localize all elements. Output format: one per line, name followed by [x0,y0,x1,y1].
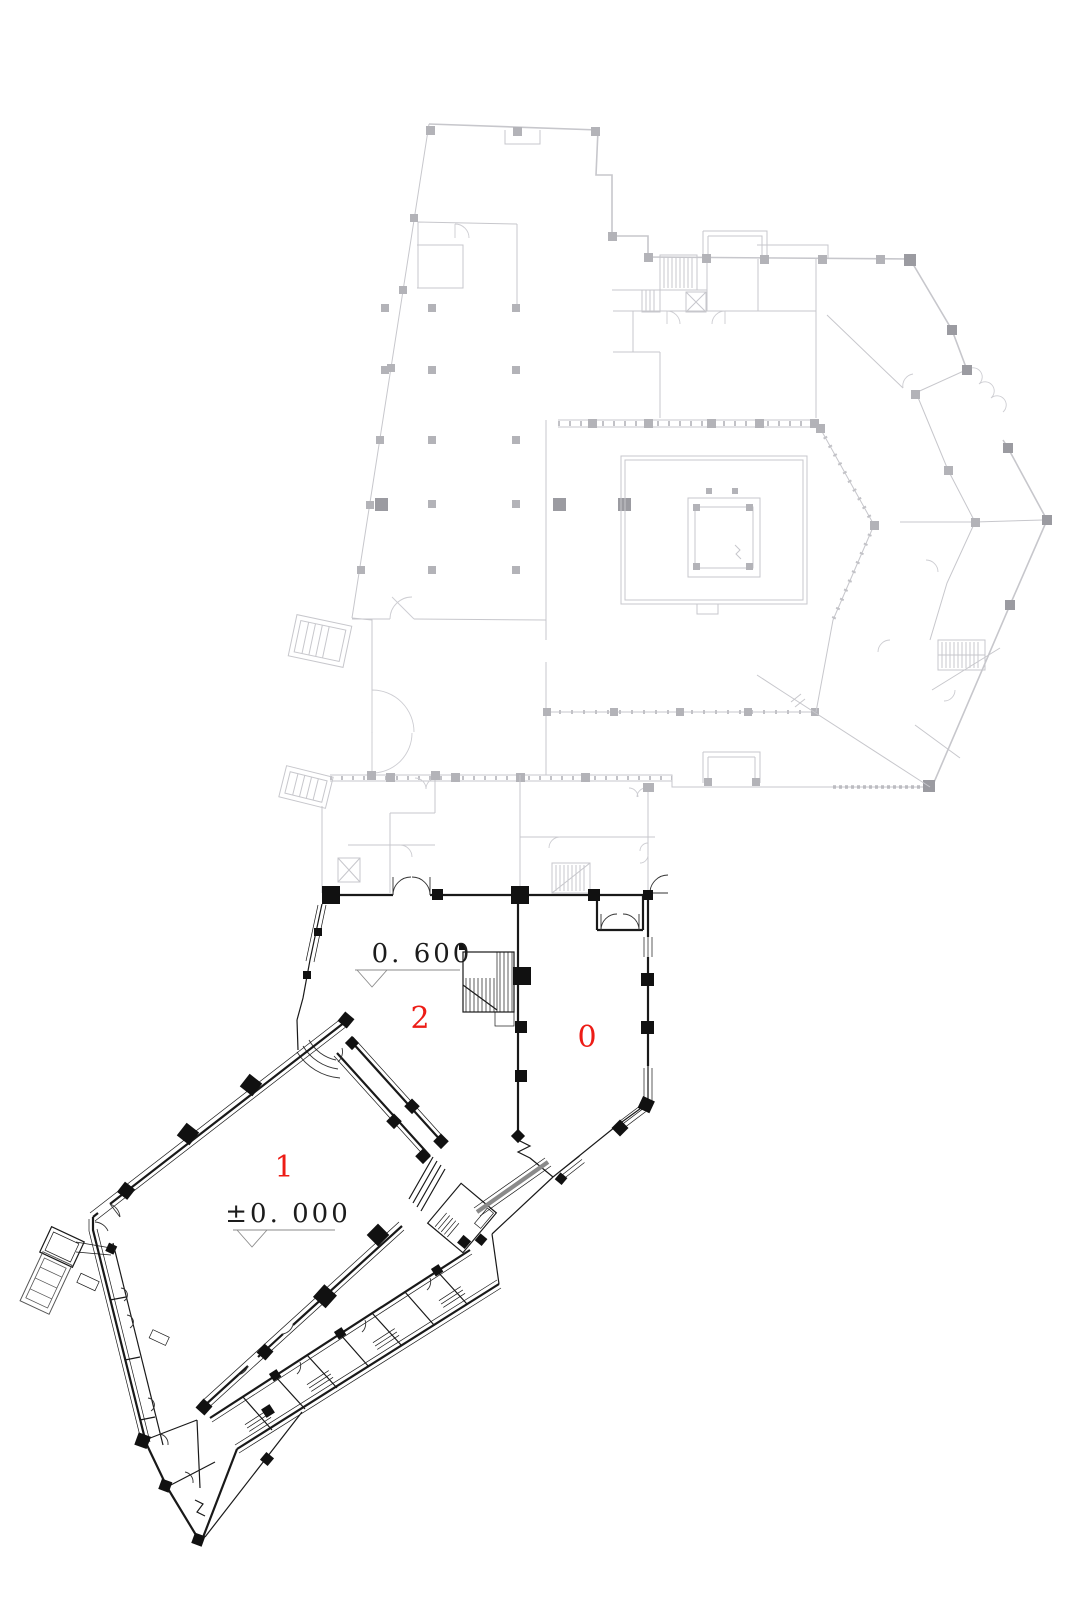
window [644,937,652,957]
upper-floor-plan [279,124,1052,893]
elevation-label-upper: 0. 600 [372,939,473,969]
elevation-marker-icon-lower [233,1230,335,1247]
room-label-2: 2 [410,1001,429,1036]
elevator-icon-2 [338,858,360,882]
window [307,1371,333,1392]
stair-room-east [428,1183,497,1252]
outside-steps [20,1252,72,1314]
annotations: 0. 600 ±0. 000 2 0 1 [225,939,596,1247]
elevation-marker-icon-upper [355,970,460,987]
floor-plan-sheet: 0. 600 ±0. 000 2 0 1 [0,0,1075,1600]
stair-lower-gray [552,863,590,893]
floor-plan-drawing: 0. 600 ±0. 000 2 0 1 [0,0,1075,1600]
elevator-icon [642,290,706,312]
room-label-1: 1 [274,1150,293,1185]
stair-right-wing [938,640,985,670]
entry-porch-upper [288,615,352,668]
room-label-0: 0 [577,1020,596,1055]
courtyard [621,456,807,614]
column-grid [357,126,631,574]
elevation-label-lower: ±0. 000 [225,1199,350,1229]
stair-upper [660,255,697,290]
entry-porch-lower [279,766,333,809]
ramp [477,1162,548,1212]
